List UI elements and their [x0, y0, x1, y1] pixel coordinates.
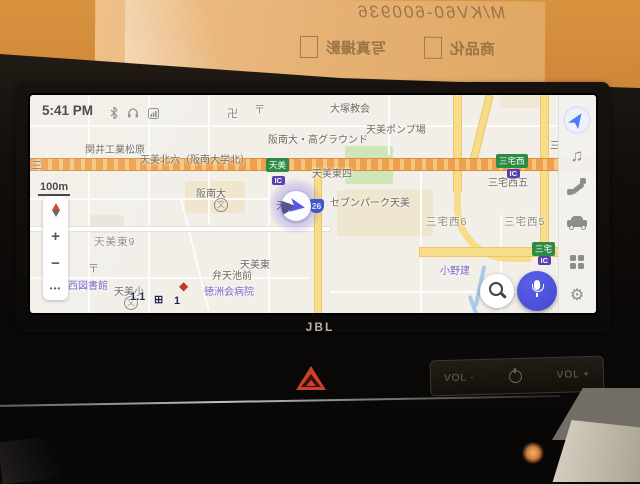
zoom-out-button[interactable]: − — [51, 258, 60, 270]
map-label: セブンパーク天美 — [330, 194, 410, 209]
gear-icon: ⚙ — [570, 287, 584, 304]
apps-grid-icon — [570, 255, 584, 269]
map-label: 大塚教会 — [330, 100, 370, 115]
map-label: 〒 — [88, 260, 99, 276]
more-options-button[interactable]: ••• — [50, 284, 61, 293]
map-label: 天美北六（阪南大学北） — [140, 151, 250, 166]
compass-icon[interactable] — [52, 203, 60, 217]
sidebar-item-media[interactable]: ♫ — [558, 147, 596, 164]
volume-strip: VOL - VOL + — [430, 356, 605, 397]
music-note-icon: ♫ — [571, 146, 584, 165]
street — [30, 125, 596, 127]
expressway-road — [541, 95, 548, 253]
clock: 5:41 PM — [42, 103, 93, 118]
checkbox-icon — [300, 36, 318, 58]
headset-icon — [127, 108, 139, 118]
map-label: 天美東四 — [312, 165, 352, 180]
map-label: 〒 — [254, 101, 265, 117]
map-label: 三宅 — [532, 242, 555, 256]
map-label: 三 — [32, 157, 42, 172]
zoom-in-button[interactable]: + — [51, 231, 60, 243]
map-label: ◆ — [179, 279, 188, 293]
map-label: 小野建 — [440, 262, 470, 277]
street — [148, 95, 150, 313]
sign-item-label: 写真撮影 — [326, 37, 386, 58]
map-label: IC — [507, 169, 520, 178]
street — [268, 169, 270, 313]
map-label: 文 — [214, 198, 228, 212]
map-scale-button[interactable]: 100m — [38, 181, 70, 196]
heading-arrow-icon — [281, 191, 311, 221]
interior-light — [522, 442, 544, 464]
sign-checkbox-item: 商品化 — [424, 37, 495, 59]
map-label: 1.1 — [130, 291, 145, 303]
map-label: 天美 — [266, 158, 289, 172]
volume-up-button[interactable]: VOL + — [557, 368, 591, 380]
sign-checkbox-rows: 商品化 写真撮影 — [135, 21, 505, 60]
map-label: 天美ポンプ場 — [366, 121, 426, 136]
checkbox-icon — [424, 37, 442, 59]
map-label: 徳洲会病院 — [204, 283, 254, 298]
jbl-logo: JBL — [0, 320, 640, 334]
expressway-branch — [470, 95, 493, 164]
search-button[interactable] — [480, 274, 514, 308]
sidebar-item-vehicle[interactable] — [558, 215, 596, 231]
navigation-arrow-icon — [563, 106, 591, 134]
sign-handwritten-code: M/KV60-600936 — [135, 1, 505, 24]
expressway-ramp — [454, 95, 461, 191]
bluetooth-icon — [110, 107, 118, 119]
sign-item-label: 商品化 — [450, 37, 495, 58]
sidebar-item-navigation[interactable] — [563, 106, 591, 134]
map-label: 天美東 — [240, 256, 270, 271]
power-button[interactable] — [509, 369, 522, 382]
map-label: 卍 — [227, 105, 238, 121]
power-icon — [514, 368, 516, 373]
infotainment-screen[interactable]: 卍〒大塚教会関井工業松原天美北六（阪南大学北）阪南大・高グラウンド天美ポンプ場天… — [30, 95, 596, 313]
current-location-puck — [281, 191, 311, 221]
map-label: 関井工業松原 — [85, 141, 145, 156]
building-area — [500, 95, 546, 108]
map-label: 三宅西5 — [504, 214, 545, 229]
map-label: 阪南大・高グラウンド — [268, 131, 368, 146]
voice-mic-button[interactable] — [517, 271, 557, 311]
map-label: IC — [538, 256, 551, 265]
interior-shadow — [0, 434, 82, 484]
zoom-panel: + − ••• — [43, 196, 68, 300]
sidebar-item-settings[interactable]: ⚙ — [558, 288, 596, 304]
hazard-button[interactable] — [293, 364, 329, 394]
cellular-icon — [148, 108, 159, 119]
map-label: 天美東9 — [94, 234, 135, 249]
map-label: 1 — [174, 295, 180, 307]
map-label: 三宅西6 — [426, 214, 467, 229]
status-icons — [110, 107, 159, 119]
map-label: 三宅西 — [496, 154, 528, 168]
sidebar-item-phone[interactable] — [558, 179, 596, 197]
sign-checkbox-item: 写真撮影 — [300, 36, 386, 59]
volume-down-button[interactable]: VOL - — [444, 372, 475, 384]
map-label: ⊞ — [154, 293, 163, 306]
map-label: 西図書館 — [68, 277, 108, 292]
sidebar-item-apps[interactable] — [558, 255, 596, 269]
